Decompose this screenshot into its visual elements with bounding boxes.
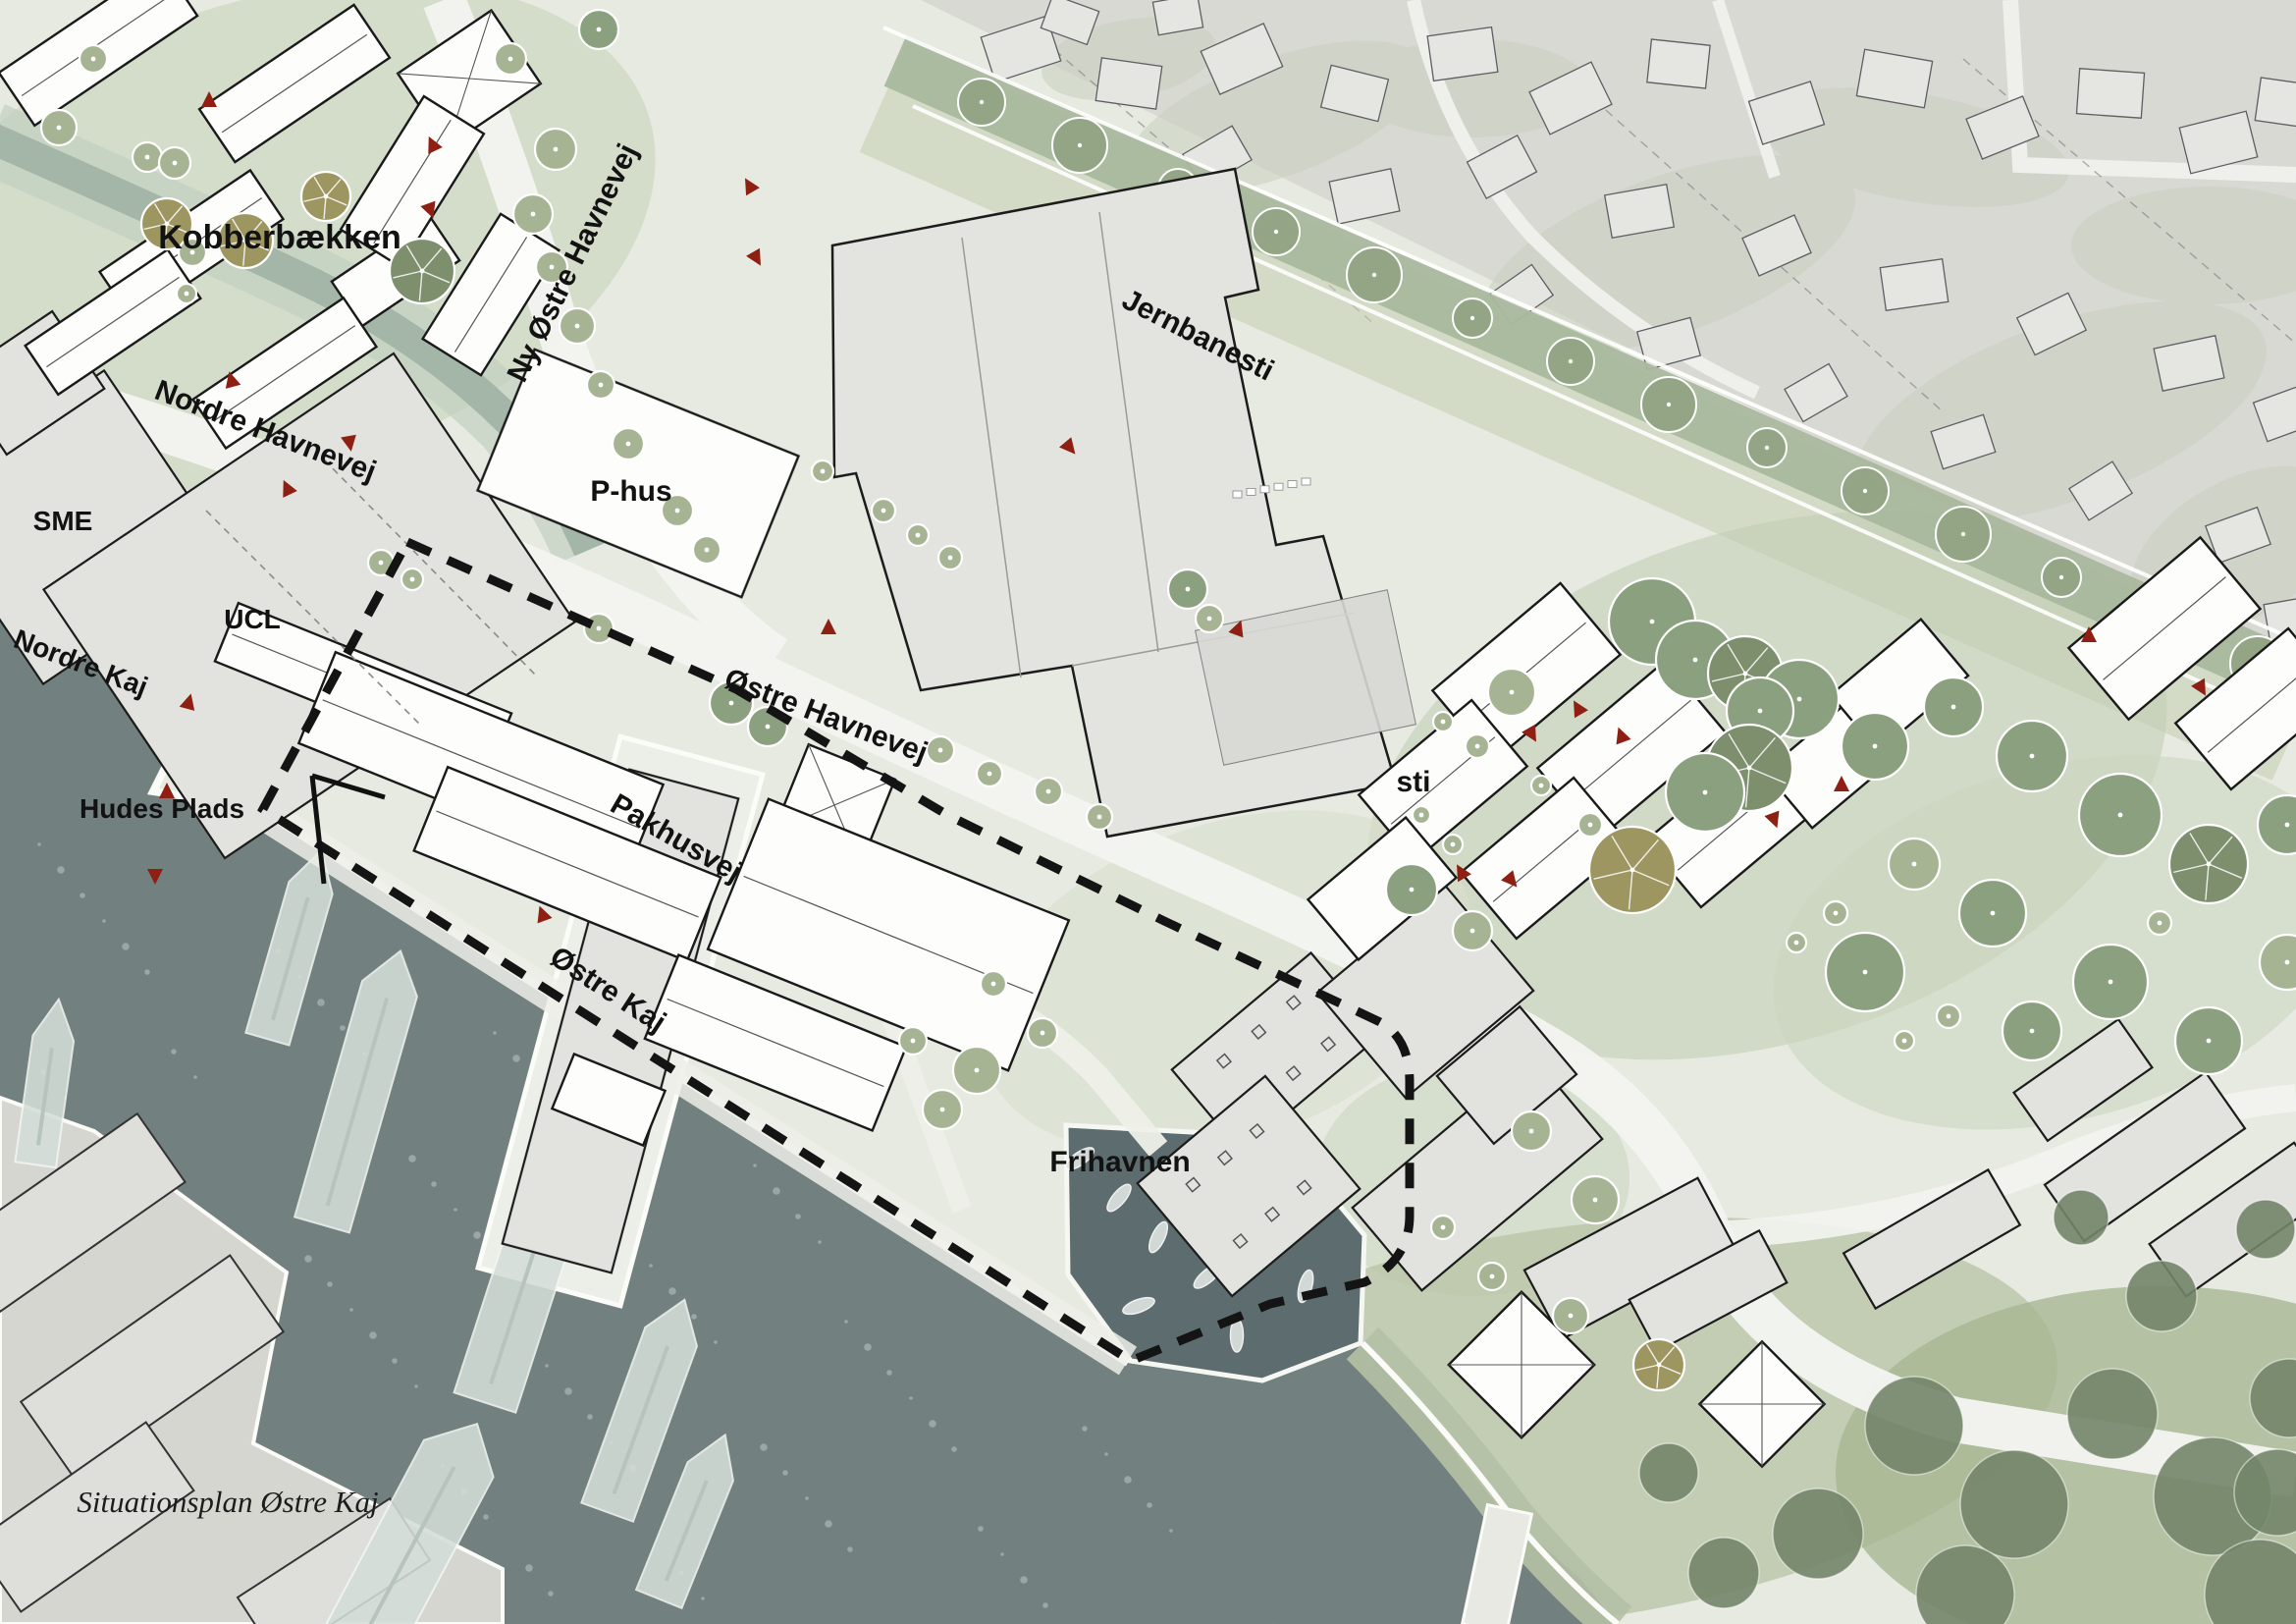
water-glint — [909, 1396, 913, 1400]
tree-icon — [1960, 1450, 2068, 1558]
tree-icon — [584, 614, 614, 643]
tree-icon — [1431, 1216, 1455, 1239]
tree-icon — [401, 568, 423, 590]
tree-center — [1186, 587, 1191, 592]
water-glint — [753, 1164, 757, 1167]
water-glint — [825, 1520, 832, 1528]
tree-icon — [1889, 839, 1940, 890]
water-glint — [317, 999, 325, 1006]
roof-louver — [1288, 481, 1297, 488]
tree-icon — [1531, 776, 1551, 795]
tree-center — [2109, 980, 2113, 985]
aerial-house — [2076, 69, 2144, 118]
tree-center — [938, 748, 943, 753]
tree-center — [626, 442, 631, 447]
roof-louver — [1274, 483, 1283, 490]
water-glint — [864, 1343, 872, 1351]
tree-icon — [693, 536, 721, 564]
water-glint — [1042, 1602, 1048, 1608]
tree-icon — [1924, 677, 1983, 736]
tree-crown — [1773, 1489, 1863, 1579]
roof-louver — [1302, 478, 1310, 485]
tree-icon — [1386, 864, 1437, 915]
tree-icon — [1478, 1263, 1506, 1290]
tree-center — [675, 509, 680, 514]
tree-icon — [1641, 377, 1696, 432]
tree-icon — [923, 1090, 962, 1129]
tree-center — [948, 556, 953, 561]
tree-icon — [133, 142, 162, 172]
water-glint — [545, 1364, 549, 1368]
tree-center — [2285, 960, 2290, 965]
tree-center — [1510, 690, 1515, 695]
water-glint — [564, 1387, 572, 1395]
tree-icon — [1453, 911, 1492, 950]
tree-icon — [1997, 721, 2067, 791]
tree-center — [975, 1068, 980, 1073]
tree-crown — [2067, 1369, 2158, 1459]
tree-icon — [1547, 338, 1594, 385]
water-glint — [1124, 1476, 1132, 1484]
water-glint — [1104, 1452, 1108, 1456]
tree-center — [1765, 446, 1769, 450]
tree-icon — [1824, 901, 1847, 925]
tree-center — [1569, 1314, 1574, 1319]
tree-icon — [1773, 1489, 1863, 1579]
tree-icon — [1633, 1339, 1684, 1390]
tree-crown — [1960, 1450, 2068, 1558]
tree-icon — [1553, 1298, 1588, 1333]
tree-icon — [2073, 945, 2148, 1019]
site-plan-map: Kobberbækken Ny Østre Havnevej Nordre Ha… — [0, 0, 2296, 1624]
tree-icon — [1413, 806, 1430, 824]
tree-icon — [80, 45, 107, 73]
water-glint — [795, 1214, 801, 1219]
tree-center — [185, 292, 189, 297]
water-glint — [171, 1049, 177, 1055]
water-glint — [340, 1025, 346, 1031]
aerial-house — [1647, 39, 1710, 88]
water-glint — [37, 842, 41, 846]
tree-icon — [872, 499, 895, 522]
tree-icon — [1347, 247, 1402, 302]
tree-icon — [535, 129, 576, 170]
tree-icon — [1028, 1018, 1057, 1048]
label-sme: SME — [33, 506, 93, 536]
water-glint — [1147, 1502, 1152, 1508]
tree-center — [916, 533, 921, 538]
tree-center — [1274, 230, 1278, 234]
water-glint — [978, 1526, 984, 1532]
tree-icon — [2067, 1369, 2158, 1459]
water-glint — [512, 1055, 520, 1062]
tree-icon — [41, 110, 77, 145]
tree-center — [1490, 1274, 1495, 1279]
tree-icon — [812, 460, 833, 482]
tree-icon — [1052, 118, 1107, 173]
roof-louver — [1233, 491, 1242, 498]
tree-center — [1902, 1039, 1907, 1044]
site-plan-page: Kobberbækken Ny Østre Havnevej Nordre Ha… — [0, 0, 2296, 1624]
tree-icon — [513, 194, 553, 234]
water-glint — [886, 1370, 892, 1376]
tree-center — [821, 469, 826, 474]
tree-icon — [1895, 1031, 1914, 1051]
water-glint — [80, 893, 85, 898]
tree-icon — [1168, 569, 1207, 609]
water-glint — [327, 1281, 333, 1287]
tree-center — [1912, 862, 1917, 867]
tree-icon — [899, 1027, 927, 1055]
water-glint — [349, 1308, 353, 1312]
tree-crown — [1688, 1538, 1759, 1608]
tree-center — [2207, 1039, 2212, 1044]
roof-louver — [1247, 488, 1255, 495]
water-glint — [102, 919, 106, 923]
tree-center — [940, 1108, 945, 1112]
water-glint — [1082, 1426, 1088, 1432]
tree-icon — [1936, 507, 1991, 562]
water-glint — [805, 1496, 809, 1500]
tree-center — [1951, 705, 1956, 710]
tree-crown — [2236, 1200, 2295, 1259]
tree-icon — [1433, 712, 1453, 731]
water-glint — [773, 1187, 780, 1195]
tree-icon — [2054, 1190, 2109, 1245]
tree-center — [2059, 575, 2063, 579]
tree-center — [599, 383, 604, 388]
tree-icon — [2148, 911, 2171, 935]
aerial-house — [1880, 259, 1949, 310]
tree-center — [379, 561, 384, 566]
tree-icon — [1787, 933, 1806, 952]
tree-crown — [2126, 1261, 2197, 1331]
tree-center — [911, 1039, 916, 1044]
tree-center — [991, 982, 996, 987]
tree-icon — [1842, 713, 1908, 780]
tree-center — [1097, 815, 1102, 820]
water-glint — [1000, 1552, 1004, 1556]
tree-center — [1588, 823, 1593, 828]
tree-center — [2030, 1029, 2035, 1034]
tree-icon — [1578, 813, 1602, 837]
tree-icon — [953, 1047, 1000, 1094]
tree-icon — [1453, 298, 1492, 338]
tree-icon — [1666, 753, 1744, 832]
tree-icon — [2175, 1007, 2242, 1074]
tree-center — [1475, 744, 1480, 749]
tree-center — [1703, 790, 1708, 795]
tree-icon — [1747, 428, 1787, 467]
tree-center — [173, 161, 178, 166]
plan-caption: Situationsplan Østre Kaj — [77, 1485, 378, 1519]
water-glint — [668, 1287, 676, 1295]
water-glint — [525, 1564, 533, 1572]
tree-icon — [2169, 825, 2248, 903]
tree-center — [988, 772, 992, 777]
water-glint — [57, 866, 65, 874]
tree-center — [1650, 620, 1655, 624]
tree-center — [1372, 273, 1376, 277]
water-glint — [649, 1264, 653, 1268]
water-glint — [587, 1414, 593, 1420]
water-glint — [691, 1314, 697, 1320]
tree-center — [145, 155, 150, 160]
water-glint — [760, 1443, 768, 1451]
tree-icon — [1488, 669, 1535, 716]
tree-center — [1693, 658, 1698, 663]
label-p-hus: P-hus — [590, 475, 671, 508]
water-glint — [304, 1255, 312, 1263]
water-glint — [369, 1331, 377, 1339]
tree-center — [1207, 617, 1212, 622]
tree-center — [1041, 1031, 1045, 1036]
tree-icon — [495, 43, 526, 75]
tree-icon — [2079, 774, 2162, 856]
tree-icon — [1087, 804, 1112, 830]
tree-icon — [2236, 1200, 2295, 1259]
tree-center — [1593, 1198, 1598, 1203]
tree-center — [1470, 929, 1475, 934]
water-glint — [818, 1240, 822, 1244]
tree-icon — [1842, 467, 1889, 514]
tree-icon — [1937, 1004, 1960, 1028]
tree-center — [1451, 842, 1456, 847]
tree-crown — [2054, 1190, 2109, 1245]
tree-icon — [1253, 208, 1300, 255]
tree-center — [1834, 911, 1839, 916]
water-glint — [701, 1597, 705, 1600]
tree-icon — [977, 761, 1002, 786]
label-frihavnen: Frihavnen — [1049, 1146, 1190, 1178]
aerial-house — [2255, 78, 2296, 129]
tree-center — [1046, 789, 1051, 794]
water-glint — [951, 1446, 957, 1452]
tree-center — [1078, 143, 1082, 147]
aerial-house — [1427, 27, 1498, 81]
tree-icon — [177, 284, 196, 303]
tree-center — [1797, 697, 1802, 702]
tree-icon — [1196, 605, 1223, 632]
aerial-house — [1095, 58, 1162, 109]
tree-center — [1470, 316, 1474, 320]
water-glint — [929, 1420, 936, 1428]
water-glint — [782, 1470, 788, 1476]
tree-icon — [1959, 880, 2026, 947]
label-ucl: UCL — [224, 604, 281, 634]
tree-center — [1758, 709, 1763, 714]
tree-center — [766, 725, 771, 730]
tree-icon — [1589, 827, 1676, 913]
water-glint — [714, 1340, 718, 1344]
tree-center — [1667, 403, 1671, 406]
label-kobberbaekken: Kobberbækken — [158, 219, 401, 256]
tree-center — [597, 626, 602, 631]
roof-louver — [1260, 486, 1269, 493]
tree-center — [1873, 744, 1878, 749]
tree-icon — [938, 546, 962, 569]
water-glint — [1169, 1529, 1173, 1533]
water-glint — [473, 1231, 481, 1239]
water-glint — [122, 943, 130, 950]
tree-center — [1419, 813, 1424, 818]
water-glint — [454, 1208, 457, 1212]
tree-center — [508, 57, 513, 62]
tree-icon — [1688, 1538, 1759, 1608]
tree-icon — [1466, 734, 1489, 758]
tree-icon — [1443, 835, 1463, 854]
water-glint — [392, 1358, 398, 1364]
water-glint — [493, 1031, 497, 1035]
tree-icon — [1572, 1176, 1619, 1223]
label-hudes-plads: Hudes Plads — [80, 793, 244, 824]
tree-center — [57, 126, 62, 131]
water-glint — [144, 969, 150, 975]
tree-center — [1947, 1014, 1951, 1019]
tree-center — [705, 548, 710, 553]
tree-icon — [2042, 558, 2081, 597]
tree-center — [1539, 784, 1544, 788]
water-glint — [847, 1546, 853, 1552]
tree-crown — [1639, 1443, 1698, 1502]
tree-center — [2285, 823, 2290, 828]
tree-center — [1961, 532, 1965, 536]
tree-icon — [1865, 1377, 1963, 1475]
tree-center — [531, 212, 536, 217]
tree-center — [881, 509, 886, 514]
tree-center — [2118, 813, 2123, 818]
tree-center — [1863, 970, 1868, 975]
tree-icon — [2126, 1261, 2197, 1331]
water-glint — [1020, 1576, 1028, 1584]
tree-crown — [1865, 1377, 1963, 1475]
tree-center — [91, 57, 96, 62]
tree-center — [729, 701, 734, 706]
tree-center — [980, 100, 984, 104]
tree-center — [1441, 720, 1446, 725]
tree-icon — [613, 428, 644, 460]
water-glint — [548, 1591, 554, 1597]
tree-center — [2030, 754, 2035, 759]
tree-center — [1794, 941, 1799, 946]
tree-icon — [587, 371, 614, 399]
tree-center — [1863, 489, 1867, 493]
water-glint — [414, 1384, 418, 1388]
tree-center — [1991, 911, 1996, 916]
tree-center — [1569, 359, 1573, 363]
tree-center — [1529, 1129, 1534, 1134]
water-glint — [408, 1155, 416, 1163]
tree-center — [1410, 888, 1415, 893]
tree-icon — [1512, 1111, 1551, 1151]
tree-center — [597, 27, 602, 32]
tree-icon — [301, 172, 350, 221]
water-glint — [193, 1075, 197, 1079]
water-glint — [483, 1514, 489, 1520]
tree-icon — [1826, 933, 1904, 1011]
water-glint — [431, 1181, 437, 1187]
water-glint — [844, 1320, 848, 1324]
tree-icon — [958, 79, 1005, 126]
tree-icon — [1639, 1443, 1698, 1502]
tree-icon — [981, 971, 1006, 997]
tree-icon — [579, 10, 618, 49]
tree-icon — [2002, 1001, 2061, 1060]
label-sti: sti — [1396, 766, 1430, 798]
tree-icon — [907, 524, 929, 546]
tree-center — [410, 577, 415, 582]
tree-icon — [159, 147, 190, 179]
tree-center — [554, 147, 559, 152]
tree-icon — [1035, 778, 1062, 805]
tree-center — [575, 324, 580, 329]
tree-center — [2158, 921, 2163, 926]
tree-center — [1441, 1225, 1446, 1230]
